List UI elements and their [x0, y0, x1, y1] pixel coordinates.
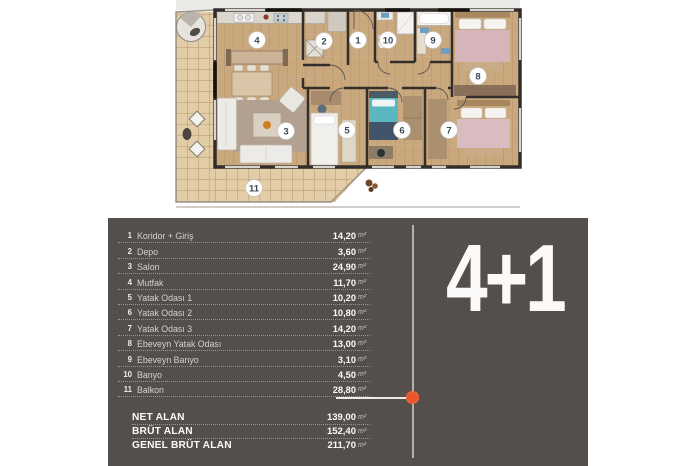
row-label: Depo: [137, 247, 320, 257]
room-marker-6: 6: [394, 122, 411, 139]
row-number: 6: [118, 308, 137, 318]
room-marker-9: 9: [425, 32, 442, 49]
room-marker-label: 7: [446, 125, 451, 136]
row-unit: m²: [358, 339, 370, 349]
row-label: Koridor + Giriş: [137, 231, 320, 241]
room-marker-7: 7: [441, 122, 458, 139]
summary-value: 139,00: [316, 412, 356, 423]
summary-unit: m²: [358, 426, 370, 437]
row-number: 4: [118, 278, 137, 288]
room-marker-label: 8: [475, 71, 480, 82]
row-value: 14,20: [320, 231, 356, 241]
table-row: 3Salon24,90m²: [118, 259, 370, 274]
table-row: 8Ebeveyn Yatak Odası13,00m²: [118, 336, 370, 351]
row-unit: m²: [358, 324, 370, 334]
table-row: 2Depo3,60m²: [118, 243, 370, 258]
row-unit: m²: [358, 308, 370, 318]
row-unit: m²: [358, 355, 370, 365]
table-row: 10Banyo4,50m²: [118, 367, 370, 382]
room-marker-label: 11: [249, 183, 260, 194]
row-unit: m²: [358, 370, 370, 380]
table-row: 1Koridor + Giriş14,20m²: [118, 228, 370, 243]
room-marker-label: 10: [383, 35, 394, 46]
row-value: 11,70: [320, 278, 356, 288]
row-number: 1: [118, 231, 137, 241]
summary-row: BRÜT ALAN152,40m²: [132, 425, 370, 438]
room-marker-label: 2: [321, 36, 326, 47]
table-row: 7Yatak Odası 314,20m²: [118, 320, 370, 335]
room-marker-5: 5: [339, 122, 356, 139]
divider-line: [412, 225, 414, 458]
room-marker-11: 11: [246, 180, 263, 197]
row-label: Balkon: [137, 385, 320, 395]
row-number: 5: [118, 293, 137, 303]
table-row: 11Balkon28,80m²: [118, 382, 370, 397]
row-label: Yatak Odası 1: [137, 293, 320, 303]
room-marker-label: 6: [399, 125, 404, 136]
table-row: 5Yatak Odası 110,20m²: [118, 290, 370, 305]
summary-label: GENEL BRÜT ALAN: [132, 440, 316, 451]
row-unit: m²: [358, 293, 370, 303]
row-number: 9: [118, 355, 137, 365]
row-value: 10,20: [320, 293, 356, 303]
area-table: 1Koridor + Giriş14,20m² 2Depo3,60m² 3Sal…: [118, 228, 370, 397]
room-marker-2: 2: [316, 33, 333, 50]
row-value: 4,50: [320, 370, 356, 380]
row-value: 3,60: [320, 247, 356, 257]
table-row: 4Mutfak11,70m²: [118, 274, 370, 289]
connector-line: [336, 397, 413, 399]
summary-value: 152,40: [316, 426, 356, 437]
summary-unit: m²: [358, 412, 370, 423]
row-label: Yatak Odası 3: [137, 324, 320, 334]
row-label: Salon: [137, 262, 320, 272]
row-unit: m²: [358, 278, 370, 288]
row-label: Yatak Odası 2: [137, 308, 320, 318]
summary-row: GENEL BRÜT ALAN211,70m²: [132, 439, 370, 452]
row-unit: m²: [358, 247, 370, 257]
row-number: 8: [118, 339, 137, 349]
row-unit: m²: [358, 262, 370, 272]
table-row: 9Ebeveyn Banyo3,10m²: [118, 351, 370, 366]
master-bedroom-furniture-icon: [454, 12, 516, 97]
info-panel: 1Koridor + Giriş14,20m² 2Depo3,60m² 3Sal…: [108, 218, 588, 466]
row-value: 10,80: [320, 308, 356, 318]
row-number: 10: [118, 370, 137, 380]
room-marker-1: 1: [350, 32, 367, 49]
row-number: 3: [118, 262, 137, 272]
row-label: Mutfak: [137, 278, 320, 288]
summary-unit: m²: [358, 440, 370, 451]
screen: 4 2 1 10 9 8 3 5 6 7 11 1Koridor + Giriş…: [0, 0, 700, 466]
summary-value: 211,70: [316, 440, 356, 451]
row-label: Banyo: [137, 370, 320, 380]
room-marker-label: 3: [283, 126, 288, 137]
room-marker-4: 4: [249, 32, 266, 49]
row-unit: m²: [358, 385, 370, 395]
room-marker-3: 3: [278, 123, 295, 140]
row-number: 7: [118, 324, 137, 334]
row-value: 3,10: [320, 355, 356, 365]
accent-dot: [406, 391, 419, 404]
room-marker-label: 9: [430, 35, 435, 46]
row-value: 13,00: [320, 339, 356, 349]
row-label: Ebeveyn Banyo: [137, 355, 320, 365]
room-marker-8: 8: [470, 68, 487, 85]
room-marker-label: 1: [355, 35, 361, 46]
row-value: 24,90: [320, 262, 356, 272]
summary-label: NET ALAN: [132, 412, 316, 423]
room-marker-10: 10: [380, 32, 397, 49]
summary-label: BRÜT ALAN: [132, 426, 316, 437]
floor-plan-drawing: 4 2 1 10 9 8 3 5 6 7 11: [170, 0, 530, 210]
summary-row: NET ALAN139,00m²: [132, 412, 370, 425]
row-value: 28,80: [320, 385, 356, 395]
floor-plan: 4 2 1 10 9 8 3 5 6 7 11: [0, 0, 700, 212]
row-number: 2: [118, 247, 137, 257]
table-row: 6Yatak Odası 210,80m²: [118, 305, 370, 320]
row-label: Ebeveyn Yatak Odası: [137, 339, 320, 349]
room-marker-label: 4: [254, 35, 260, 46]
row-number: 11: [118, 385, 137, 395]
row-unit: m²: [358, 231, 370, 241]
summary-table: NET ALAN139,00m² BRÜT ALAN152,40m² GENEL…: [132, 412, 370, 452]
room-marker-label: 5: [344, 125, 350, 136]
unit-type-label: 4+1: [446, 231, 564, 327]
row-value: 14,20: [320, 324, 356, 334]
